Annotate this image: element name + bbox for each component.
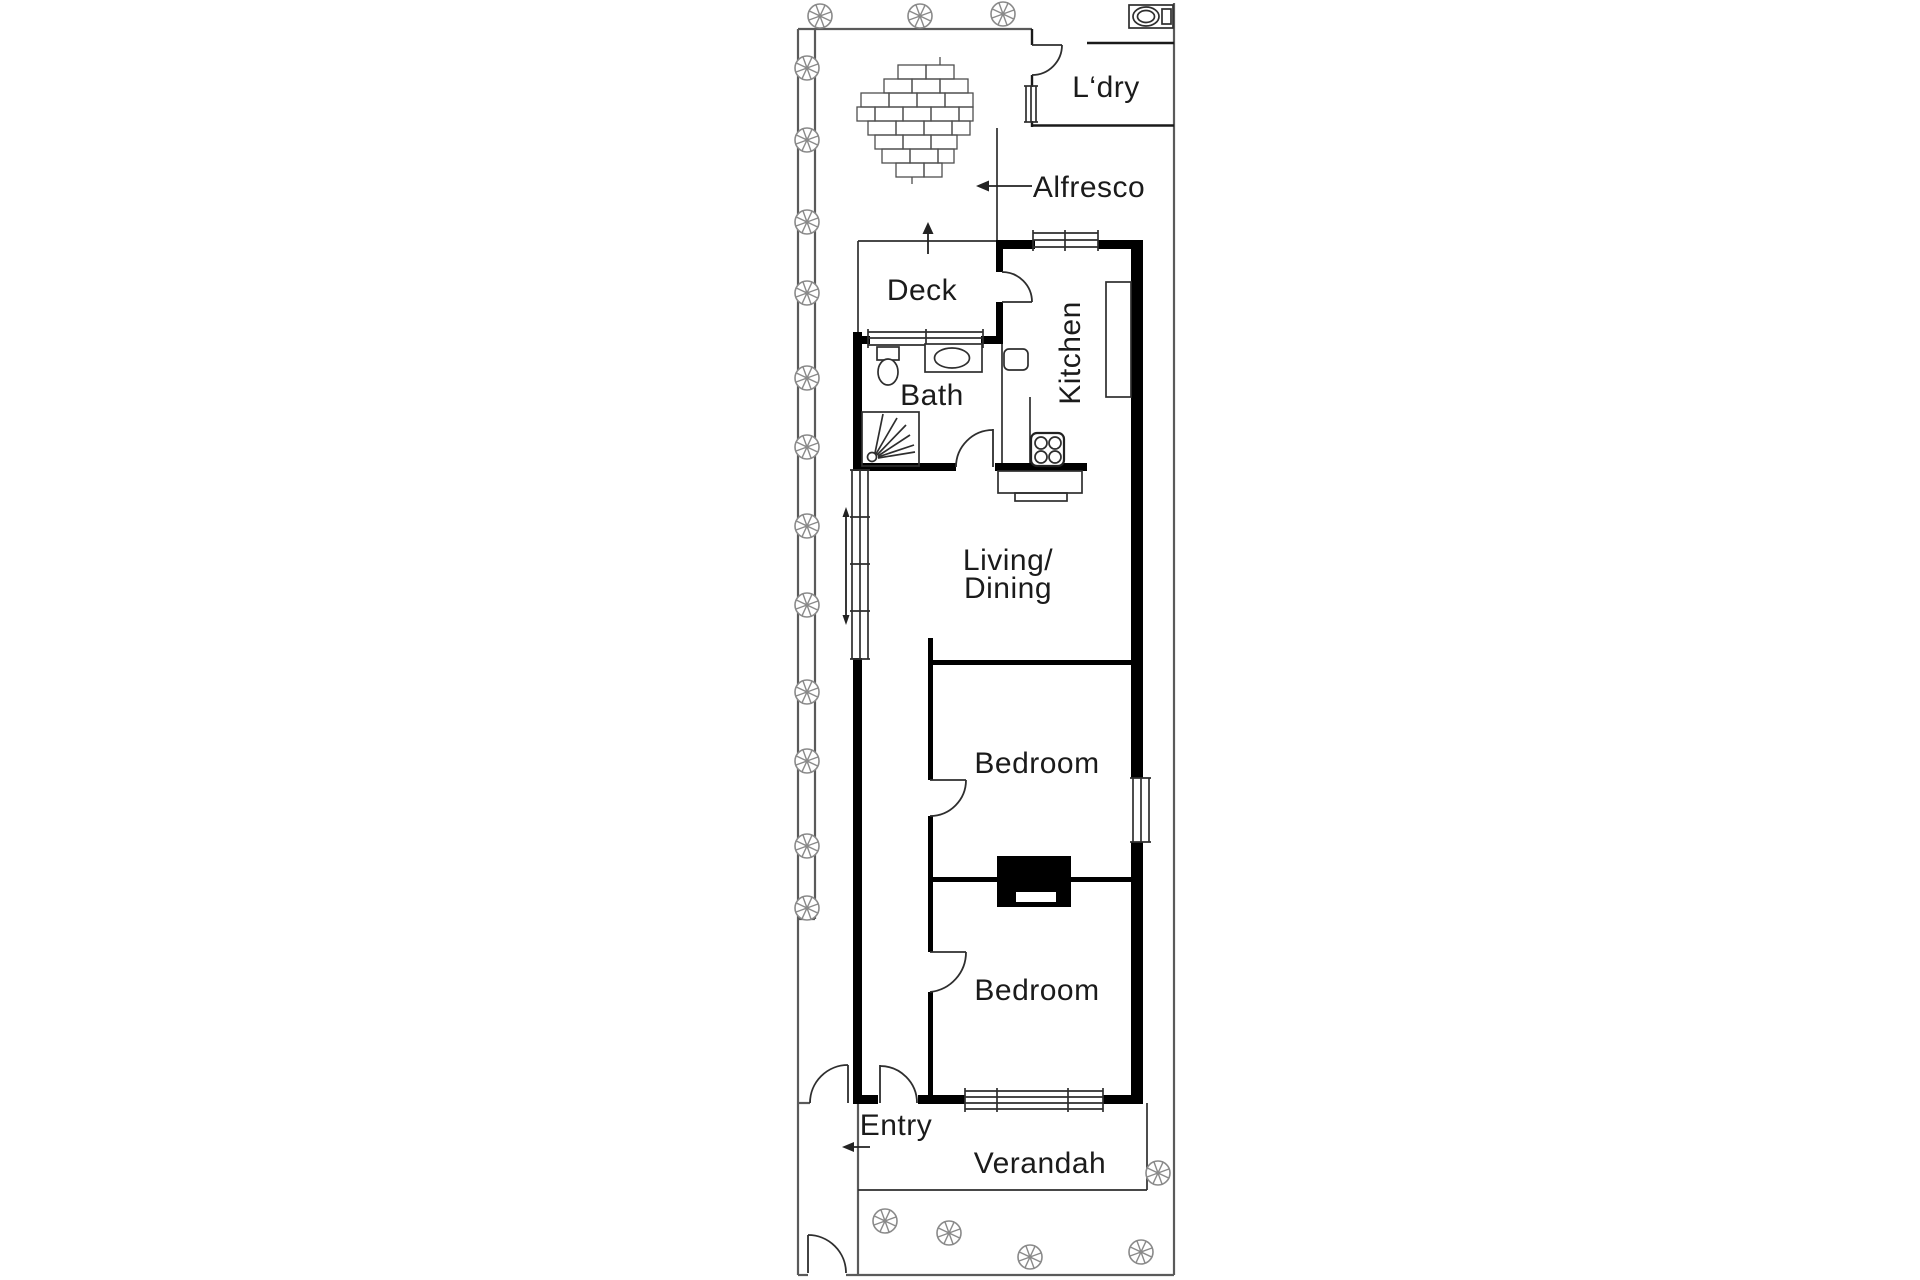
floorplan-page: L‘dry Alfresco Deck Kitchen Bath Living/… — [0, 0, 1920, 1280]
shower-icon — [862, 412, 919, 466]
tree-icon — [795, 210, 819, 234]
living-west-window — [843, 470, 871, 659]
floorplan-svg: L‘dry Alfresco Deck Kitchen Bath Living/… — [0, 0, 1920, 1280]
alfresco-entry-arrow — [976, 181, 1032, 192]
tree-icon — [1146, 1161, 1170, 1185]
tree-icon — [908, 4, 932, 28]
front-window — [965, 1088, 1103, 1112]
side-gate — [810, 1065, 848, 1103]
room-label-deck: Deck — [887, 274, 958, 307]
tree-icon — [1018, 1245, 1042, 1269]
front-door — [880, 1065, 917, 1103]
tree-icon — [795, 593, 819, 617]
room-label-living-line2: Dining — [964, 572, 1052, 605]
tree-icon — [795, 435, 819, 459]
tree-icon — [937, 1221, 961, 1245]
bedroom-front-door — [930, 780, 966, 816]
bedroom-east-window — [1130, 778, 1151, 842]
room-label-bath: Bath — [900, 379, 964, 412]
room-label-alfresco: Alfresco — [1033, 171, 1145, 204]
room-label-bedroom-front: Bedroom — [974, 747, 1099, 780]
tree-icon — [873, 1209, 897, 1233]
bath-door — [956, 429, 993, 467]
rear-gate — [808, 1235, 846, 1273]
toilet-icon — [877, 347, 899, 385]
room-label-kitchen: Kitchen — [1054, 301, 1087, 405]
tree-icon — [795, 680, 819, 704]
tree-icon — [795, 834, 819, 858]
laundry-door — [1032, 45, 1062, 75]
fireplace-icon — [997, 856, 1071, 907]
island-bench — [998, 471, 1082, 501]
deck-entry-arrow — [923, 222, 934, 254]
tree-icon — [795, 56, 819, 80]
tree-icon — [795, 896, 819, 920]
tree-icon — [795, 281, 819, 305]
tree-icon — [795, 366, 819, 390]
room-label-laundry: L‘dry — [1072, 71, 1140, 104]
kitchen-counter — [1106, 282, 1131, 397]
tree-icon — [795, 514, 819, 538]
vanity-basin-icon — [925, 344, 982, 372]
entry-arrow — [842, 1142, 870, 1152]
bedroom-rear-door — [930, 952, 966, 992]
tree-icon — [991, 2, 1015, 26]
tree-icon — [795, 749, 819, 773]
brick-paving — [857, 57, 973, 184]
deck-kitchen-door — [1002, 272, 1032, 302]
laundry-trough-icon — [1129, 5, 1173, 28]
tree-icon — [1129, 1240, 1153, 1264]
laundry-room — [1024, 5, 1174, 127]
stove-icon — [1031, 433, 1064, 466]
tree-icon — [795, 128, 819, 152]
kitchen-north-window — [1033, 230, 1098, 251]
room-label-verandah: Verandah — [974, 1147, 1106, 1180]
kitchen-sink-icon — [1004, 349, 1028, 370]
room-label-bedroom-rear: Bedroom — [974, 974, 1099, 1007]
tree-icon — [808, 4, 832, 28]
laundry-window — [1024, 86, 1038, 122]
room-label-entry: Entry — [860, 1109, 933, 1142]
slide-direction-arrow — [843, 507, 850, 625]
